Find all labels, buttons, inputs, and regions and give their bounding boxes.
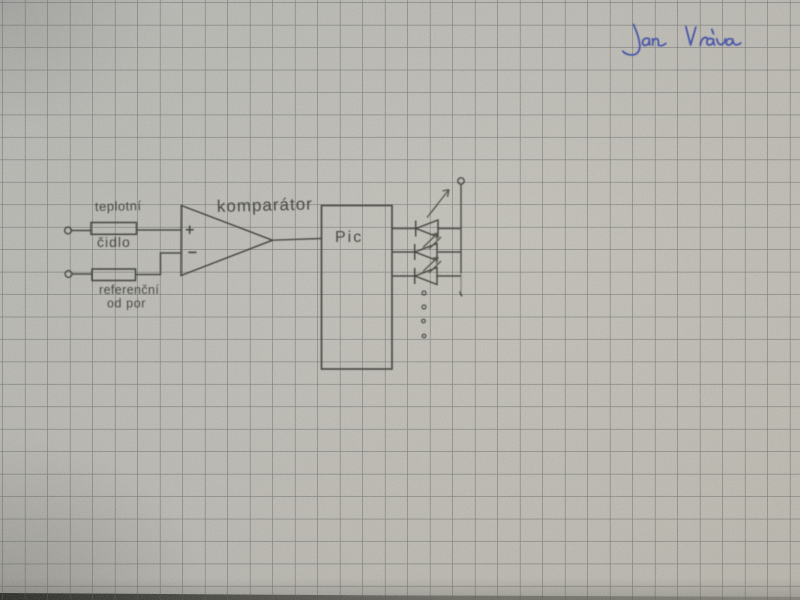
svg-text:referenční: referenční — [99, 283, 159, 297]
svg-text:teplotní: teplotní — [95, 198, 142, 214]
svg-text:komparátor: komparátor — [217, 194, 313, 216]
svg-text:čidlo: čidlo — [97, 234, 131, 250]
svg-text:od por: od por — [107, 297, 146, 311]
svg-text:Pic: Pic — [335, 229, 363, 246]
